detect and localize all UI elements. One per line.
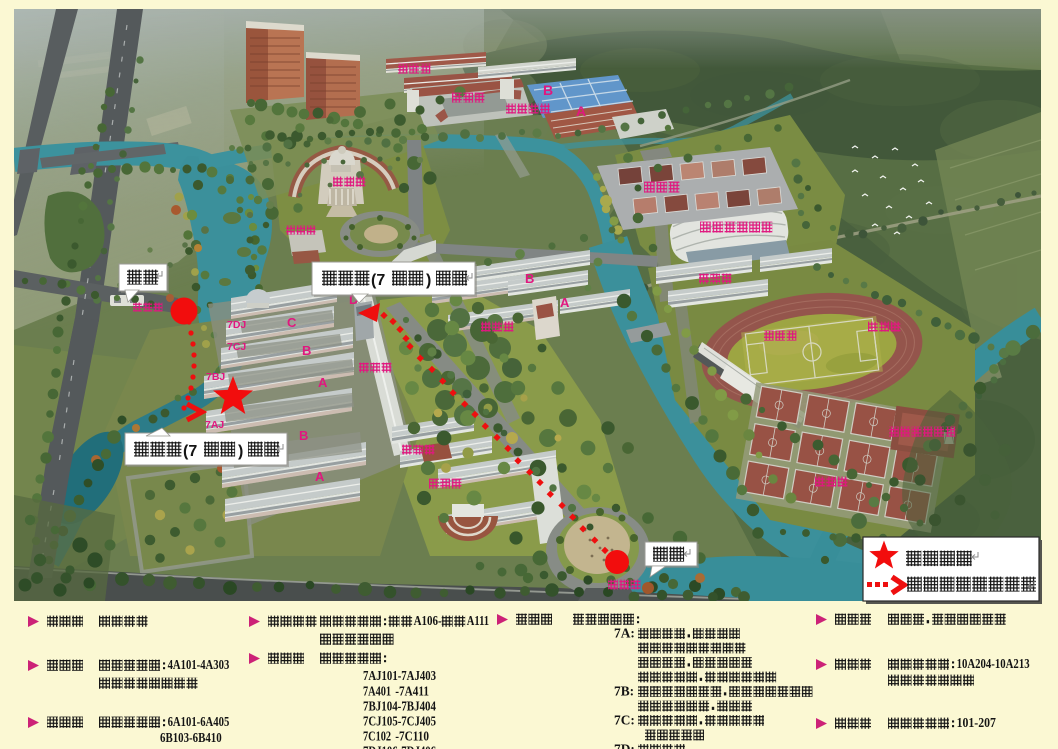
svg-text:7A:: 7A: [614,626,635,641]
svg-text:B: B [299,428,308,443]
svg-text:7DJ106-7DJ406: 7DJ106-7DJ406 [363,744,436,749]
svg-text:B: B [543,82,553,98]
svg-text:): ) [238,443,243,460]
svg-text:A: A [560,295,570,310]
svg-text:7CJ: 7CJ [227,341,246,353]
svg-text:-7C110: -7C110 [395,729,429,744]
svg-text:(7: (7 [371,272,385,289]
svg-text:4A101-4A303: 4A101-4A303 [168,657,230,672]
svg-text:7AJ101-7AJ403: 7AJ101-7AJ403 [363,668,436,683]
svg-text:A: A [315,469,325,484]
svg-text:7C102: 7C102 [363,729,391,744]
svg-text:A111: A111 [467,613,489,628]
svg-text:7DJ: 7DJ [227,319,246,331]
svg-text:6A101-6A405: 6A101-6A405 [168,714,230,729]
svg-text:7BJ104-7BJ404: 7BJ104-7BJ404 [363,698,436,713]
svg-text:101-207: 101-207 [957,715,997,730]
svg-text:7AJ: 7AJ [205,419,224,431]
svg-text:7CJ105-7CJ405: 7CJ105-7CJ405 [363,714,436,729]
svg-text:7D:: 7D: [614,742,635,749]
svg-text:6B103-6B410: 6B103-6B410 [160,730,222,745]
svg-text:7BJ: 7BJ [206,371,225,383]
svg-text:C: C [287,315,297,330]
svg-text:B: B [525,271,534,286]
svg-text:A: A [576,103,586,119]
svg-text:(7: (7 [183,443,197,460]
svg-text:): ) [426,272,431,289]
svg-text:7B:: 7B: [614,684,634,699]
svg-text:A: A [318,375,328,390]
svg-text:10A204-10A213: 10A204-10A213 [957,656,1030,671]
svg-text:7A401: 7A401 [363,683,391,698]
svg-text:B: B [302,343,311,358]
svg-text:A106-: A106- [414,613,442,628]
svg-text:7C:: 7C: [614,713,635,728]
svg-text:-7A411: -7A411 [395,683,429,698]
